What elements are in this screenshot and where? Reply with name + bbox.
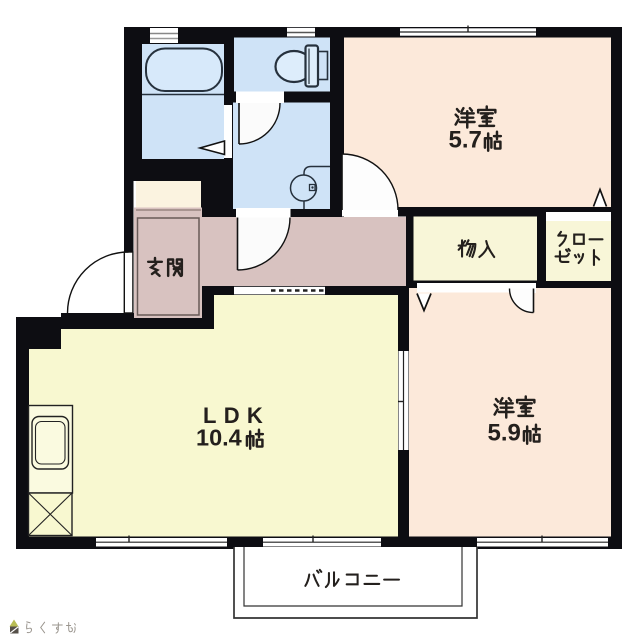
svg-text:10.4: 10.4 — [196, 425, 242, 451]
svg-text:5.9: 5.9 — [488, 420, 521, 447]
svg-text:5.7: 5.7 — [449, 127, 482, 154]
